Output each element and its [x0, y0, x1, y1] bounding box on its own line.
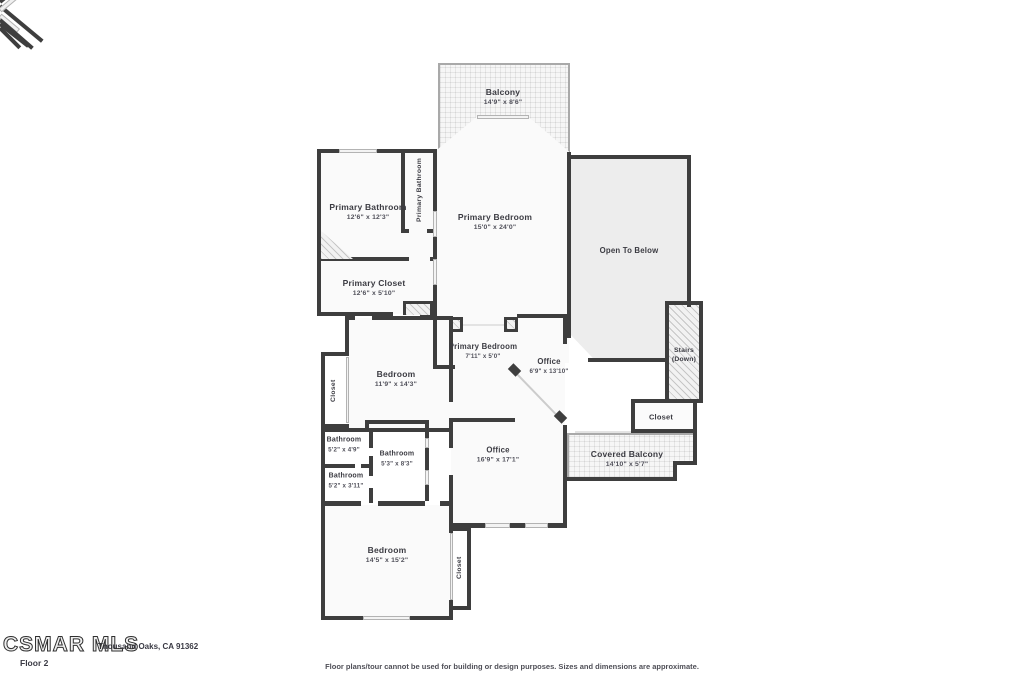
- wall-segment: [433, 149, 437, 211]
- wall-segment: [567, 477, 677, 481]
- room-name: Bathroom: [327, 436, 362, 445]
- wall-segment: [321, 464, 355, 468]
- room-label-balcony: Balcony 14'9" x 8'6": [484, 87, 523, 107]
- room-label-stairs: Stairs (Down): [672, 347, 696, 365]
- room-label-covered-balcony: Covered Balcony 14'10" x 5'7": [591, 449, 663, 469]
- room-dims: 15'0" x 24'0": [458, 224, 532, 232]
- wall-segment: [693, 401, 697, 465]
- room-label-primary-bathroom: Primary Bathroom 12'6" x 12'3": [329, 202, 406, 222]
- wall-segment: [449, 475, 453, 505]
- wall-segment: [425, 420, 429, 432]
- room-dims: 14'9" x 8'6": [484, 99, 523, 107]
- room-name: Primary Closet: [343, 278, 406, 289]
- opening-line: [575, 431, 631, 433]
- wall-segment: [378, 501, 425, 506]
- door-opening: [425, 438, 429, 448]
- room-label-bedroom-mid: Bedroom 11'9" x 14'3": [375, 369, 417, 389]
- room-label-primary-bedroom: Primary Bedroom 15'0" x 24'0": [458, 212, 532, 232]
- room-name: Bedroom: [366, 545, 409, 556]
- room-name: Bedroom: [375, 369, 417, 380]
- wall-segment: [449, 418, 515, 422]
- wall-segment: [321, 501, 361, 506]
- column-post: [504, 317, 518, 332]
- room-dims: 5'2" x 4'9": [327, 446, 362, 454]
- room-name: Balcony: [484, 87, 523, 98]
- room-name: Office: [477, 445, 520, 455]
- wall-segment: [517, 314, 567, 318]
- room-name: Open To Below: [600, 246, 659, 256]
- wall-segment: [369, 456, 373, 476]
- wall-segment: [425, 485, 429, 501]
- floor-plan: Balcony 14'9" x 8'6" Primary Bathroom 12…: [0, 0, 1024, 683]
- room-dims: 14'5" x 15'2": [366, 557, 409, 565]
- room-dims: 14'10" x 5'7": [591, 461, 663, 469]
- window-marker: [477, 115, 529, 119]
- room-dims: 7'11" x 5'0": [449, 352, 517, 360]
- wall-segment: [588, 358, 668, 362]
- wall-segment: [510, 523, 525, 528]
- wall-segment: [321, 352, 325, 428]
- room-dims: (Down): [672, 357, 696, 365]
- wall-segment: [372, 316, 453, 320]
- window-marker: [363, 616, 410, 620]
- room-label-primary-bedroom-hall: Primary Bedroom 7'11" x 5'0": [449, 342, 517, 360]
- wall-segment: [365, 420, 369, 432]
- chase-area: [403, 301, 433, 315]
- opening-line: [463, 324, 504, 326]
- room-name: Bathroom: [329, 472, 364, 481]
- wall-segment: [317, 149, 437, 153]
- wall-segment: [563, 425, 567, 527]
- wall-segment: [425, 448, 429, 470]
- room-dims: 11'9" x 14'3": [375, 381, 417, 389]
- room-name: Office: [530, 357, 569, 367]
- mls-watermark: CSMAR MLS: [3, 633, 139, 657]
- room-name: Primary Bedroom: [449, 342, 517, 352]
- room-dims: 12'6" x 12'3": [329, 214, 406, 222]
- room-dims: 5'2" x 3'11": [329, 482, 364, 490]
- wall-segment: [567, 152, 571, 338]
- room-label-bathroom-top: Bathroom 5'2" x 4'9": [327, 436, 362, 454]
- room-dims: 16'9" x 17'1": [477, 456, 520, 464]
- wall-segment: [449, 600, 453, 620]
- wall-segment: [321, 428, 453, 432]
- room-name: Covered Balcony: [591, 449, 663, 460]
- wall-segment: [321, 352, 349, 356]
- wall-segment: [345, 316, 349, 356]
- wall-segment: [548, 523, 567, 528]
- wall-segment: [369, 488, 373, 503]
- room-label-office-large: Office 16'9" x 17'1": [477, 445, 520, 464]
- room-label-primary-closet: Primary Closet 12'6" x 5'10": [343, 278, 406, 298]
- room-name: Stairs: [672, 347, 696, 355]
- window-marker: [433, 259, 437, 285]
- wall-segment: [321, 432, 325, 505]
- floor-label: Floor 2: [20, 658, 48, 668]
- window-marker: [525, 523, 548, 528]
- room-dims: 6'9" x 13'10": [530, 367, 569, 375]
- wall-segment: [467, 527, 471, 610]
- room-label-open-to-below: Open To Below: [600, 246, 659, 256]
- wall-segment: [365, 420, 429, 424]
- room-name: Primary Bathroom: [329, 202, 406, 213]
- room-name: Bathroom: [380, 450, 415, 459]
- room-dims: 5'3" x 8'3": [380, 460, 415, 468]
- wall-segment: [369, 432, 373, 448]
- door-opening: [425, 470, 429, 485]
- wall-segment: [321, 503, 325, 620]
- room-label-bedroom-bottom: Bedroom 14'5" x 15'2": [366, 545, 409, 565]
- wall-segment: [449, 418, 453, 448]
- room-label-primary-bathroom-wc: Primary Bathroom: [415, 154, 425, 226]
- disclaimer-text: Floor plans/tour cannot be used for buil…: [325, 662, 699, 671]
- wall-segment: [449, 606, 471, 610]
- window-marker: [339, 149, 377, 153]
- wall-segment: [410, 616, 453, 620]
- window-marker: [485, 523, 510, 528]
- room-label-closet-mid: Closet: [329, 370, 339, 412]
- office-large-area: [451, 420, 565, 525]
- room-label-bathroom-mid: Bathroom 5'3" x 8'3": [380, 450, 415, 468]
- closet-door-marker: [450, 533, 453, 600]
- wall-segment: [317, 149, 321, 316]
- room-dims: 12'6" x 5'10": [343, 290, 406, 298]
- wall-segment: [567, 155, 691, 159]
- room-label-bathroom-bottom: Bathroom 5'2" x 3'11": [329, 472, 364, 490]
- door-opening: [433, 211, 437, 237]
- wall-segment: [433, 237, 437, 259]
- wall-segment: [687, 159, 691, 307]
- room-label-closet-right: Closet: [649, 412, 673, 421]
- wall-segment: [321, 616, 363, 620]
- room-name: Closet: [649, 412, 673, 421]
- room-name: Primary Bedroom: [458, 212, 532, 223]
- room-label-office-small: Office 6'9" x 13'10": [530, 357, 569, 375]
- wall-segment: [563, 318, 567, 344]
- wall-segment: [433, 285, 437, 365]
- closet-door-marker: [346, 357, 349, 423]
- room-label-closet-bottom: Closet: [455, 547, 465, 589]
- wall-segment: [401, 229, 409, 233]
